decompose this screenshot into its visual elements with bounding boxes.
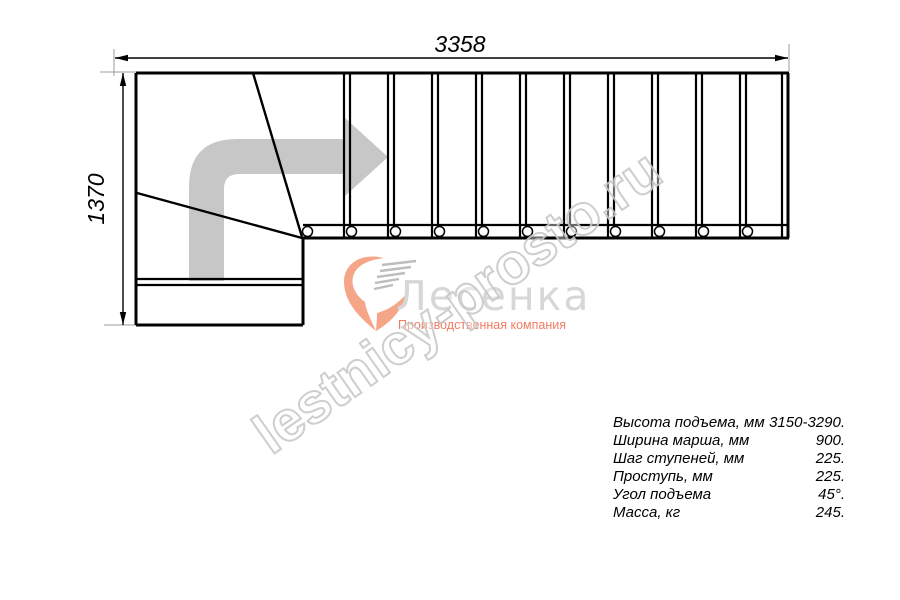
- spec-table: Высота подъема, мм 3150-3290. Ширина мар…: [613, 414, 845, 522]
- spec-value: 225.: [816, 468, 845, 486]
- dim-arrow-right: [775, 55, 788, 61]
- spec-label: Проступь, мм: [613, 468, 713, 486]
- spec-row: Угол подъема 45°.: [613, 486, 845, 504]
- dim-arrow-top: [120, 73, 126, 86]
- logo-subtitle: Производственная компания: [398, 318, 566, 332]
- spec-row: Масса, кг 245.: [613, 504, 845, 522]
- spec-value: 3150-3290.: [769, 414, 845, 432]
- spec-row: Высота подъема, мм 3150-3290.: [613, 414, 845, 432]
- company-logo: Лесенка Производственная компания: [340, 252, 570, 342]
- spec-value: 900.: [816, 432, 845, 450]
- logo-company-name: Лесенка: [396, 276, 591, 317]
- spec-value: 245.: [816, 504, 845, 522]
- dimension-horizontal: 3358: [115, 31, 788, 61]
- dim-arrow-bottom: [120, 312, 126, 325]
- drawing-sheet: 3358 1370: [0, 0, 900, 600]
- dimension-vertical: 1370: [83, 73, 126, 325]
- spec-row: Ширина марша, мм 900.: [613, 432, 845, 450]
- tread-lines: [344, 73, 746, 238]
- spec-label: Шаг ступеней, мм: [613, 450, 744, 468]
- stringer-fastener-circles: [303, 227, 753, 237]
- spec-label: Угол подъема: [613, 486, 711, 504]
- spec-row: Проступь, мм 225.: [613, 468, 845, 486]
- spec-label: Масса, кг: [613, 504, 680, 522]
- spec-label: Высота подъема, мм: [613, 414, 765, 432]
- dim-arrow-left: [115, 55, 128, 61]
- dimension-horizontal-value: 3358: [434, 31, 485, 57]
- spec-row: Шаг ступеней, мм 225.: [613, 450, 845, 468]
- spec-value: 45°.: [818, 486, 845, 504]
- spec-value: 225.: [816, 450, 845, 468]
- spec-label: Ширина марша, мм: [613, 432, 749, 450]
- dimension-vertical-value: 1370: [83, 173, 109, 224]
